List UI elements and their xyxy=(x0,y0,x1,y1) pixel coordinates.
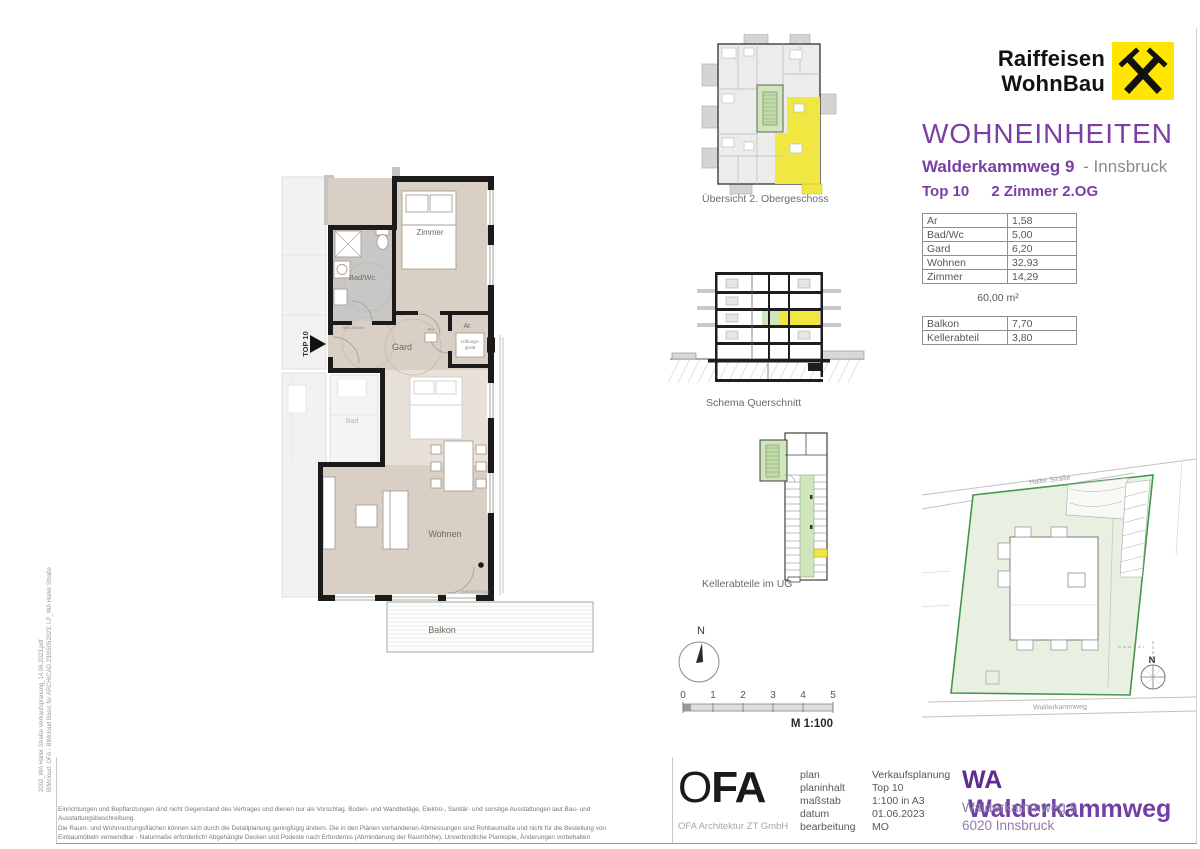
main-floorplan: Bad xyxy=(280,165,600,660)
scale-tick-3: 3 xyxy=(770,690,776,701)
titleblock-values: Verkaufsplanung Top 10 1:100 in A3 01.06… xyxy=(872,769,950,834)
project-title: WA Walderkammweg xyxy=(962,766,1200,824)
ofa-logo: OFA xyxy=(678,764,765,812)
table-row: Zimmer14,29 xyxy=(923,270,1077,284)
extra-row-value: 3,80 xyxy=(1008,331,1077,345)
basement-door-mark-1 xyxy=(810,495,813,499)
subtitle-address: Walderkammweg 9 xyxy=(922,157,1074,176)
value-plan: Verkaufsplanung xyxy=(872,769,950,782)
project-address-1: Walderkammweg 9 xyxy=(962,800,1077,815)
page-border-left xyxy=(56,757,57,843)
scale-bar-body xyxy=(683,704,833,711)
section-highlight-green xyxy=(762,311,780,325)
label-massstab: maßstab xyxy=(800,795,855,808)
site-compass-n-label: N xyxy=(1149,655,1156,666)
area-row-label: Wohnen xyxy=(923,256,1008,270)
compass-n-label: N xyxy=(697,625,705,637)
cross-section-caption: Schema Querschnitt xyxy=(706,397,801,409)
label-plan: plan xyxy=(800,769,855,782)
lueftung-label-1: Lüftungs- xyxy=(461,339,480,344)
area-total: 60,00 m² xyxy=(948,292,1048,304)
area-row-label: Bad/Wc xyxy=(923,228,1008,242)
page-title: WOHNEINHEITEN xyxy=(922,118,1173,150)
side-file-note-line1: 2002_WA Haller Straße Verkaufsplanung_14… xyxy=(38,567,46,792)
balkon-label: Balkon xyxy=(428,625,456,635)
area-row-label: Ar xyxy=(923,214,1008,228)
value-massstab: 1:100 in A3 xyxy=(872,795,950,808)
unit-type: 2 Zimmer 2.OG xyxy=(991,183,1098,200)
disclaimer-line2: Die Raum- und Wohnnutzungsflächen können… xyxy=(58,824,660,833)
entwaesserung-label: Entwässerung xyxy=(462,589,489,594)
section-ground xyxy=(668,351,864,383)
basement-caption: Kellerabteile im UG xyxy=(702,578,792,590)
drain-point xyxy=(478,562,484,568)
plan-sheet: 2002_WA Haller Straße Verkaufsplanung_14… xyxy=(0,0,1200,849)
railing xyxy=(500,335,503,595)
table-row: Balkon7,70 xyxy=(923,317,1077,331)
faint-bed xyxy=(410,377,462,439)
ofa-subline: OFA Architektur ZT GmbH xyxy=(678,821,788,832)
label-bearbeitung: bearbeitung xyxy=(800,821,855,834)
titleblock-labels: plan planinhalt maßstab datum bearbeitun… xyxy=(800,769,855,834)
grey-wall-stub-top xyxy=(392,167,400,177)
ev-label: EV xyxy=(428,327,434,332)
scale-tick-4: 4 xyxy=(800,690,806,701)
scale-tick-2: 2 xyxy=(740,690,746,701)
site-building xyxy=(998,527,1098,650)
unit-number: Top 10 xyxy=(922,183,969,200)
scale-label: M 1:100 xyxy=(791,718,833,730)
scale-tick-0: 0 xyxy=(680,690,686,701)
scale-bar: 0 1 2 3 4 5 M 1:100 xyxy=(678,686,848,732)
section-highlight-yellow xyxy=(780,311,820,325)
wohnen-label: Wohnen xyxy=(428,529,461,539)
disclaimer-line3: Einbaumöbeln verwendbar - Naturmaße erfo… xyxy=(58,833,660,842)
table-row: Kellerabteil3,80 xyxy=(923,331,1077,345)
extra-row-label: Balkon xyxy=(923,317,1008,331)
label-planinhalt: planinhalt xyxy=(800,782,855,795)
raiffeisen-logo-line2: WohnBau xyxy=(920,71,1105,96)
site-driveway xyxy=(1066,478,1128,519)
gard-label: Gard xyxy=(392,342,412,352)
basement-highlight-compartment xyxy=(814,549,827,557)
extra-table: Balkon7,70 Kellerabteil3,80 xyxy=(922,316,1077,345)
top10-entry-label: TOP 10 xyxy=(301,331,310,357)
table-row: Ar1,58 xyxy=(923,214,1077,228)
table-row: Wohnen32,93 xyxy=(923,256,1077,270)
area-row-value: 14,29 xyxy=(1008,270,1077,284)
street-bottom-label: Walderkammweg xyxy=(1033,704,1087,712)
subtitle-city: - Innsbruck xyxy=(1083,157,1167,176)
overview-caption: Übersicht 2. Obergeschoss xyxy=(702,193,829,205)
disclaimer-line1: Einrichtungen und Bepflanzungen sind nic… xyxy=(58,805,660,824)
bad-label: Bad/Wc xyxy=(349,273,376,282)
area-row-label: Gard xyxy=(923,242,1008,256)
value-planinhalt: Top 10 xyxy=(872,782,950,795)
area-row-value: 1,58 xyxy=(1008,214,1077,228)
label-datum: datum xyxy=(800,808,855,821)
area-table: Ar1,58 Bad/Wc5,00 Gard6,20 Wohnen32,93 Z… xyxy=(922,213,1077,284)
ofa-logo-fa: FA xyxy=(711,763,765,812)
table-row: Bad/Wc5,00 xyxy=(923,228,1077,242)
cross-section xyxy=(668,255,868,403)
side-file-note-line2: BIMcloud: OFA - BIMcloud Basic für ARCHI… xyxy=(46,567,54,792)
scale-tick-1: 1 xyxy=(710,690,716,701)
raiffeisen-logo-text: Raiffeisen WohnBau xyxy=(920,46,1105,96)
project-title-wa: WA xyxy=(962,766,1002,794)
footer-divider xyxy=(672,757,673,843)
raiffeisen-logo-icon xyxy=(1112,42,1174,100)
ofa-logo-o: O xyxy=(678,763,711,812)
lueftung-label-2: gerät xyxy=(465,345,476,350)
area-row-value: 5,00 xyxy=(1008,228,1077,242)
zimmer-label: Zimmer xyxy=(416,228,443,237)
page-border-bottom xyxy=(56,843,1197,844)
overview-stair xyxy=(763,92,777,125)
scale-bar-segment xyxy=(683,704,691,711)
compass: N xyxy=(672,618,732,696)
table-row: Gard6,20 xyxy=(923,242,1077,256)
section-structure xyxy=(708,272,830,382)
neighbor-bad-label: Bad xyxy=(346,418,359,425)
page-subtitle: Walderkammweg 9 - Innsbruck xyxy=(922,157,1167,177)
basement-door-mark-2 xyxy=(810,525,813,529)
area-row-label: Zimmer xyxy=(923,270,1008,284)
disclaimer-text: Einrichtungen und Bepflanzungen sind nic… xyxy=(58,805,660,843)
area-row-value: 6,20 xyxy=(1008,242,1077,256)
raiffeisen-logo-line1: Raiffeisen xyxy=(920,46,1105,71)
area-row-value: 32,93 xyxy=(1008,256,1077,270)
overview-plan xyxy=(694,34,866,199)
site-plan: Haller Straße Walderkammweg N xyxy=(920,455,1198,727)
value-bearbeitung: MO xyxy=(872,821,950,834)
scale-tick-5: 5 xyxy=(830,690,836,701)
hwt-label: HWT-Nische xyxy=(342,325,365,330)
extra-row-value: 7,70 xyxy=(1008,317,1077,331)
value-datum: 01.06.2023 xyxy=(872,808,950,821)
unit-line: Top 10 2 Zimmer 2.OG xyxy=(922,183,1098,200)
project-address-2: 6020 Innsbruck xyxy=(962,818,1054,833)
ar-label: Ar xyxy=(464,323,472,330)
scale-ticks: 0 1 2 3 4 5 xyxy=(680,690,836,701)
extra-row-label: Kellerabteil xyxy=(923,331,1008,345)
basement-plan xyxy=(698,425,848,583)
side-file-note: 2002_WA Haller Straße Verkaufsplanung_14… xyxy=(38,567,54,792)
